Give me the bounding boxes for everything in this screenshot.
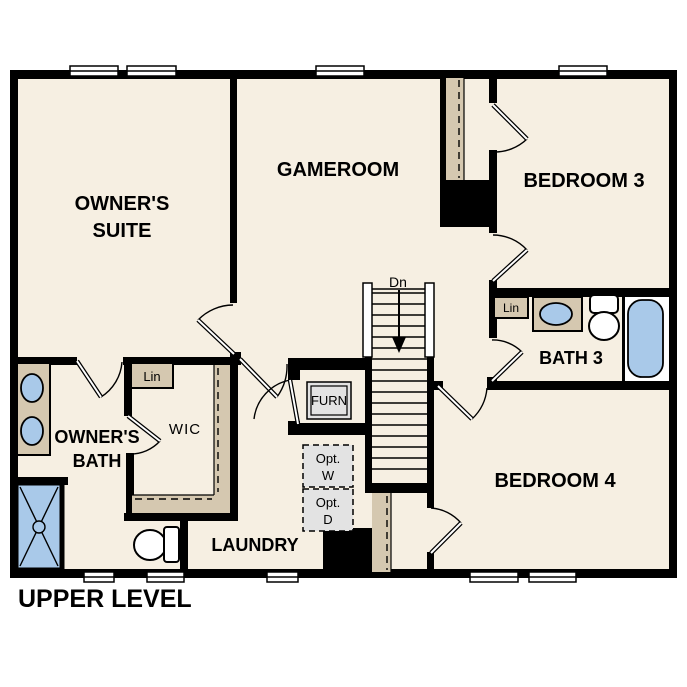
wic-shelf-east (214, 365, 230, 495)
window-top-2 (127, 66, 176, 76)
wic-label: WIC (169, 421, 201, 438)
window-bottom-2 (147, 572, 184, 582)
floor-plan-drawing: Dn (0, 0, 687, 687)
bedroom3-closet-shelf (446, 78, 464, 180)
opt-washer-label-line1: Opt. (316, 451, 341, 466)
owners-suite-label-line1: OWNER'S (75, 193, 170, 215)
wic-linen-label: Lin (143, 369, 160, 384)
bath3-label: BATH 3 (539, 348, 603, 368)
window-bottom-3 (267, 572, 298, 582)
gameroom-label: GAMEROOM (277, 159, 399, 181)
window-bottom-4 (470, 572, 518, 582)
plan-title: UPPER LEVEL (18, 585, 192, 613)
opt-dryer-label-line1: Opt. (316, 495, 341, 510)
owners-bath-sink-2 (21, 417, 43, 445)
bedroom3-label: BEDROOM 3 (523, 170, 644, 192)
owners-bath-shower (16, 483, 62, 570)
floor-plan-page: Dn (0, 0, 687, 687)
window-bottom-1 (84, 572, 114, 582)
bedroom4-label: BEDROOM 4 (494, 470, 616, 492)
owners-bath-label-line1: OWNER'S (54, 427, 139, 447)
bedroom4-closet-shelf (372, 493, 391, 572)
stairs-down-label: Dn (389, 274, 407, 290)
owners-bath-toilet (134, 527, 179, 562)
window-bottom-5 (529, 572, 576, 582)
owners-bath-sink-1 (21, 374, 43, 402)
window-top-4 (559, 66, 607, 76)
bath3-sink (540, 303, 572, 325)
window-top-1 (70, 66, 118, 76)
owners-suite-label-line2: SUITE (93, 220, 152, 242)
bath3-linen-label: Lin (503, 301, 519, 315)
stair-rail-left (363, 283, 372, 357)
owners-bath-label-line2: BATH (73, 451, 122, 471)
laundry-label: LAUNDRY (211, 535, 298, 555)
wic-shelf-south (132, 495, 230, 513)
stair-rail-right (425, 283, 434, 357)
opt-washer-label-line2: W (322, 468, 335, 483)
bath3-toilet (589, 295, 619, 340)
furnace-label: FURN (311, 393, 347, 408)
bath3-tub (628, 300, 663, 377)
opt-dryer-label-line2: D (323, 512, 332, 527)
window-top-3 (316, 66, 364, 76)
